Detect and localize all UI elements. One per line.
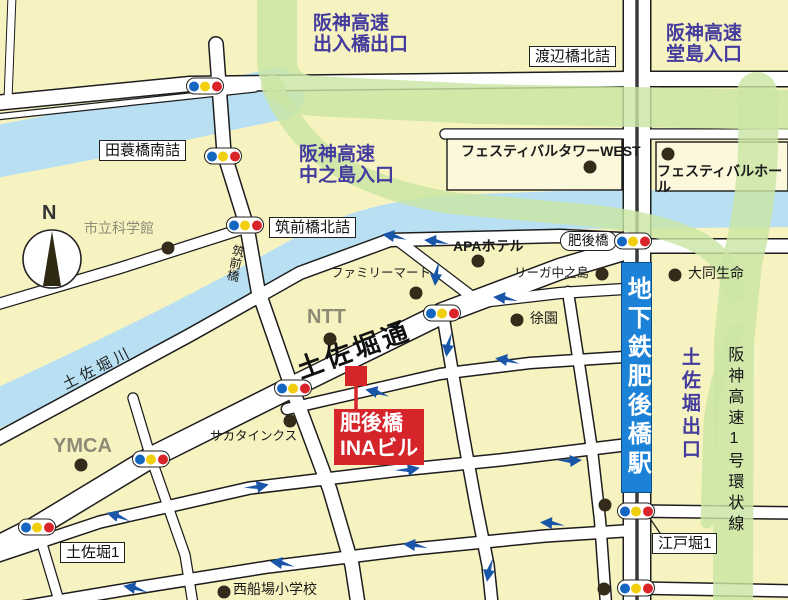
traffic-light-blue-lamp (207, 151, 217, 161)
festival-tower-west: フェスティバルタワーWEST (461, 143, 641, 159)
traffic-light-blue-lamp (189, 81, 199, 91)
traffic-light-blue-lamp (135, 454, 145, 464)
traffic-light-icon (274, 380, 312, 397)
traffic-light-yellow-lamp (240, 220, 250, 230)
traffic-light-icon (204, 148, 242, 165)
traffic-light-yellow-lamp (146, 454, 156, 464)
tosabori-river: 土佐堀川 (60, 343, 136, 393)
one-way-arrow-icon (440, 331, 456, 358)
poi-dot-icon (598, 583, 611, 596)
daido-seimei: 大同生命 (688, 265, 744, 281)
map-label-layer: 阪神高速 出入橋出口渡辺橋北詰阪神高速 堂島入口田蓑橋南詰市立科学館阪神高速 中… (0, 0, 788, 600)
poi-dot-icon (284, 415, 297, 428)
traffic-light-red-lamp (252, 220, 262, 230)
traffic-light-blue-lamp (21, 522, 31, 532)
traffic-light-red-lamp (158, 454, 168, 464)
poi-dot-icon (218, 586, 231, 599)
ymca: YMCA (53, 435, 112, 458)
traffic-light-red-lamp (212, 81, 222, 91)
traffic-light-red-lamp (449, 308, 459, 318)
nishifunaba-elementary: 西船場小学校 (233, 581, 317, 597)
one-way-arrow-icon (243, 478, 271, 495)
traffic-light-icon (226, 217, 264, 234)
traffic-light-blue-lamp (277, 383, 287, 393)
higobashi-ina-building-label: 肥後橋 INAビル (334, 409, 424, 465)
one-way-arrow-icon (423, 234, 450, 248)
traffic-light-red-lamp (640, 236, 650, 246)
poi-dot-icon (472, 255, 485, 268)
poi-dot-icon (599, 499, 612, 512)
higobashi-area-map: 阪神高速 出入橋出口渡辺橋北詰阪神高速 堂島入口田蓑橋南詰市立科学館阪神高速 中… (0, 0, 788, 600)
traffic-light-icon (617, 580, 655, 597)
hanshin-deiribashi-exit: 阪神高速 出入橋出口 (313, 13, 408, 56)
traffic-light-yellow-lamp (288, 383, 298, 393)
poi-dot-icon (584, 161, 597, 174)
tosabori-exit: 土佐堀出口 (678, 347, 700, 462)
poi-dot-icon (662, 148, 675, 161)
poi-dot-icon (410, 287, 423, 300)
traffic-light-red-lamp (300, 383, 310, 393)
traffic-light-icon (617, 503, 655, 520)
festival-hall: フェスティバルホール (657, 163, 788, 195)
traffic-light-blue-lamp (229, 220, 239, 230)
poi-dot-icon (162, 242, 175, 255)
traffic-light-yellow-lamp (218, 151, 228, 161)
traffic-light-red-lamp (44, 522, 54, 532)
traffic-light-red-lamp (230, 151, 240, 161)
one-way-arrow-icon (493, 352, 520, 368)
traffic-light-blue-lamp (620, 583, 630, 593)
edobori-1: 江戸堀1 (652, 533, 717, 554)
apa-hotel: APAホテル (453, 238, 524, 254)
traffic-light-yellow-lamp (437, 308, 447, 318)
shiritsu-kagakukan: 市立科学館 (84, 220, 154, 236)
one-way-arrow-icon (268, 555, 295, 571)
one-way-arrow-icon (104, 507, 132, 525)
subway-higobashi-station: 地下鉄肥後橋駅 (621, 262, 652, 493)
traffic-light-icon (186, 78, 224, 95)
one-way-arrow-icon (481, 556, 497, 584)
chikuzenbashi-bridge: 筑前橋 (223, 243, 245, 283)
traffic-light-blue-lamp (620, 506, 630, 516)
tosabori-1: 土佐堀1 (60, 542, 125, 563)
traffic-light-yellow-lamp (200, 81, 210, 91)
joen: 徐園 (530, 310, 558, 326)
one-way-arrow-icon (402, 538, 429, 552)
traffic-light-yellow-lamp (32, 522, 42, 532)
traffic-light-blue-lamp (617, 236, 627, 246)
one-way-arrow-icon (557, 454, 584, 468)
compass-north-label: N (42, 202, 56, 225)
traffic-light-yellow-lamp (631, 583, 641, 593)
hanshin-loop-line: 阪神高速1号環状線 (724, 346, 742, 536)
traffic-light-red-lamp (643, 583, 653, 593)
riga-nakanoshima: リーガ中之島 (514, 266, 589, 280)
poi-dot-icon (75, 459, 88, 472)
traffic-light-icon (132, 451, 170, 468)
traffic-light-yellow-lamp (628, 236, 638, 246)
poi-dot-icon (669, 269, 682, 282)
poi-dot-icon (596, 268, 609, 281)
sakata-inx: サカタインクス (210, 429, 297, 443)
traffic-light-red-lamp (643, 506, 653, 516)
one-way-arrow-icon (380, 228, 407, 244)
higobashi-bridge: 肥後橋 (560, 231, 617, 251)
traffic-light-icon (423, 305, 461, 322)
poi-dot-icon (511, 314, 524, 327)
hanshin-nakanoshima-entrance: 阪神高速 中之島入口 (299, 144, 394, 187)
one-way-arrow-icon (539, 516, 566, 529)
traffic-light-icon (614, 233, 652, 250)
traffic-light-blue-lamp (426, 308, 436, 318)
hanshin-dojima-entrance: 阪神高速 堂島入口 (666, 23, 742, 66)
ntt: NTT (307, 306, 346, 329)
one-way-arrow-icon (492, 291, 519, 305)
one-way-arrow-icon (121, 580, 149, 596)
family-mart: ファミリーマート (331, 266, 431, 280)
one-way-arrow-icon (363, 383, 391, 400)
tamigusabashi-minamizume: 田蓑橋南詰 (99, 140, 186, 161)
watanabebashi-kitazume: 渡辺橋北詰 (529, 46, 616, 67)
traffic-light-yellow-lamp (631, 506, 641, 516)
chikuzenbashi-kitazume: 筑前橋北詰 (269, 217, 356, 238)
traffic-light-icon (18, 519, 56, 536)
one-way-arrow-icon (429, 261, 443, 288)
